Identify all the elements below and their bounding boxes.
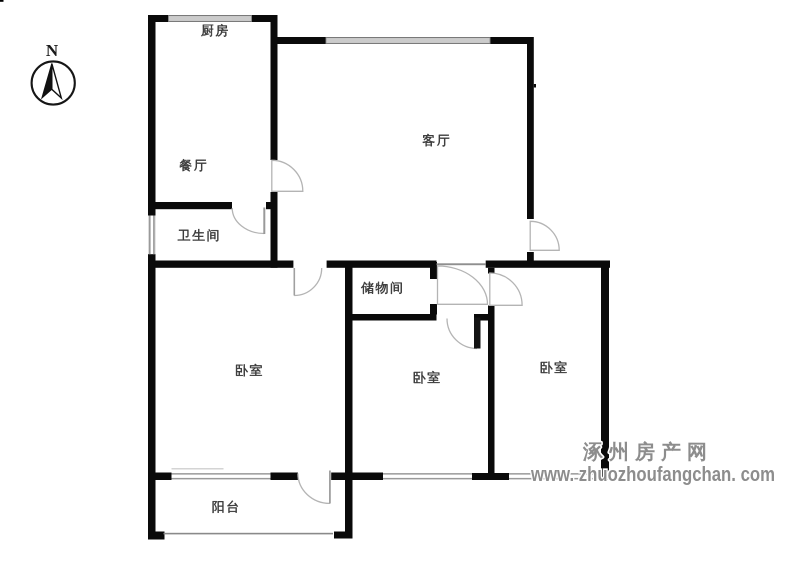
svg-text:www. zhuozhoufangchan. com: www. zhuozhoufangchan. com bbox=[530, 464, 775, 486]
svg-text:N: N bbox=[46, 41, 59, 60]
